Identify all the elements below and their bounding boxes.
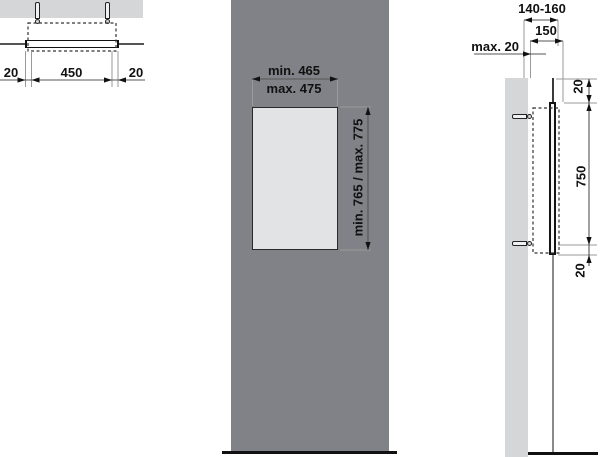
label-width-min: min. 465 <box>244 64 344 77</box>
screw-icon <box>105 2 110 19</box>
screw-tip-icon <box>35 19 40 24</box>
label-width-max: max. 475 <box>244 82 344 95</box>
wall-section-top-view <box>0 0 143 18</box>
hanger-rail-line <box>552 78 554 104</box>
label-wall-clearance: max. 20 <box>459 40 519 53</box>
floor-line <box>528 452 598 455</box>
mirror-front-view <box>252 107 338 250</box>
screw-tip-icon <box>527 241 532 246</box>
label-depth-nominal: 150 <box>506 24 586 37</box>
mirror-side-profile <box>549 102 556 255</box>
label-offset-right: 20 <box>126 66 146 79</box>
label-depth-range: 140-160 <box>502 2 582 15</box>
screw-tip-icon <box>527 114 532 119</box>
label-offset-left: 20 <box>1 66 21 79</box>
floor-line <box>222 451 397 454</box>
screw-tip-icon <box>105 19 110 24</box>
screw-icon <box>35 2 40 19</box>
label-gap-bottom: 20 <box>574 241 587 301</box>
screw-icon <box>512 114 527 119</box>
label-height-range: min. 765 / max. 775 <box>352 103 365 253</box>
wall-section-side-view <box>505 78 528 457</box>
installation-diagram: 20 450 20 min. 465 max. 475 min. 765 / m… <box>0 0 600 457</box>
mirror-profile-top-view <box>25 40 119 48</box>
label-gap-top: 20 <box>572 57 585 117</box>
screw-icon <box>512 241 527 246</box>
wall-surface-line-lower <box>552 255 554 454</box>
label-width-450: 450 <box>46 66 97 79</box>
label-height-750: 750 <box>575 147 588 207</box>
